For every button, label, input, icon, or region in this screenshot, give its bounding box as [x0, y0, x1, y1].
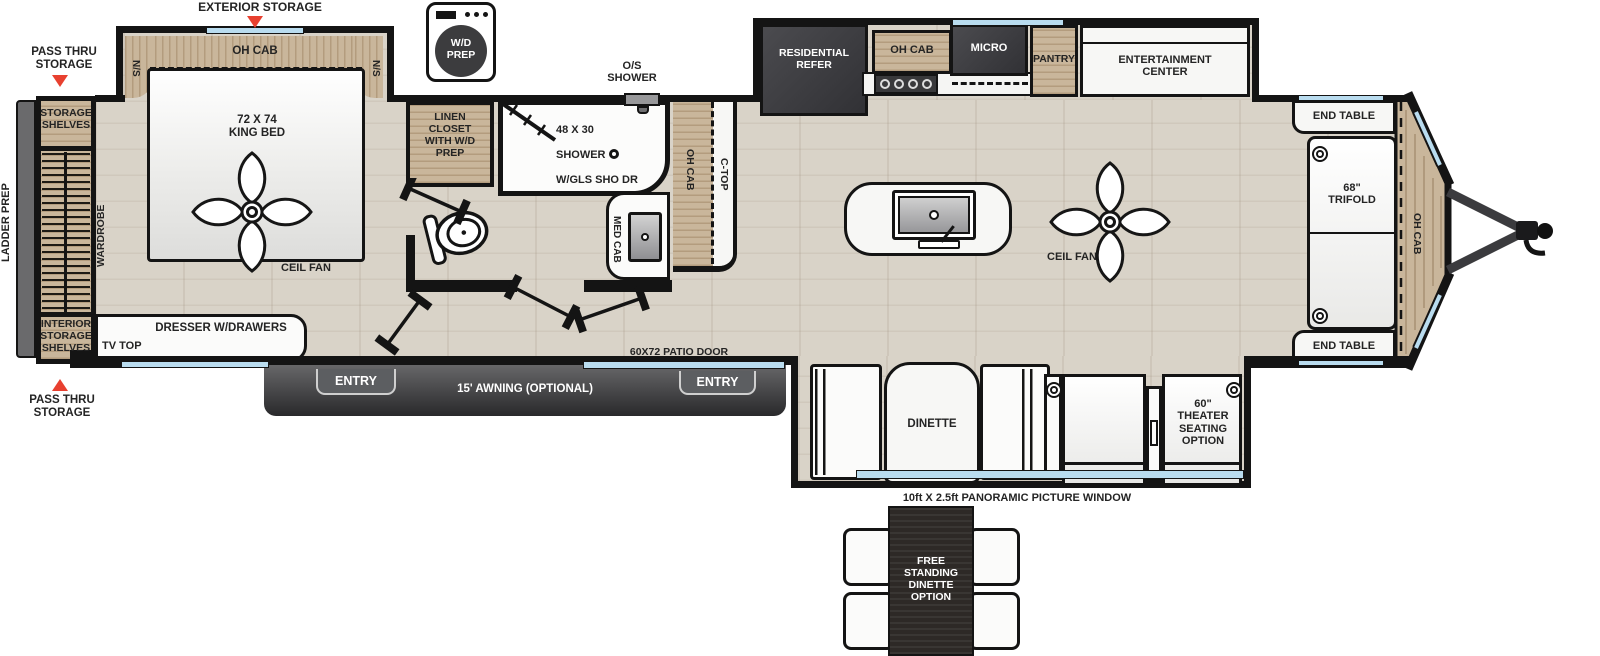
- patio-door-window: [583, 361, 785, 369]
- pantry-label: PANTRY: [1026, 54, 1082, 66]
- island-sink-drain: [929, 210, 939, 220]
- wardrobe-rod: [64, 152, 67, 312]
- entertainment-label: ENTERTAINMENT CENTER: [1086, 54, 1244, 79]
- entry-front-label: ENTRY: [679, 375, 756, 389]
- wardrobe-label: WARDROBE: [96, 190, 112, 282]
- kitchen-slide-window: [952, 19, 1064, 26]
- os-shower-fixture: [624, 93, 660, 106]
- burner-icon: [880, 79, 890, 89]
- theater-seat-right-footline: [1164, 462, 1240, 465]
- washer-knob: [483, 12, 488, 17]
- theater-console-tray: [1150, 420, 1158, 446]
- end-table-rear-label: END TABLE: [1294, 340, 1394, 352]
- living-ceiling-fan-icon: [1044, 156, 1176, 288]
- awning-label: 15' AWNING (OPTIONAL): [398, 383, 652, 396]
- burner-icon: [894, 79, 904, 89]
- cup-holder-icon: [1312, 146, 1328, 162]
- entertainment-divider: [1083, 42, 1247, 44]
- c-top-label: C-TOP: [714, 146, 729, 202]
- storage-divider: [38, 146, 94, 151]
- dinette-chair: [968, 592, 1020, 650]
- dinette-bench-right: [980, 364, 1050, 480]
- shower-size-text: 48 X 30: [556, 124, 594, 136]
- travel-trailer-floorplan: LADDER PREP EXTERIOR STORAGE PASS THRU S…: [0, 0, 1600, 656]
- exterior-storage-label: EXTERIOR STORAGE: [188, 1, 332, 15]
- washer-icon: W/D PREP: [426, 2, 496, 82]
- entry-rear-label: ENTRY: [316, 374, 396, 388]
- panoramic-window-label: 10ft X 2.5ft PANORAMIC PICTURE WINDOW: [857, 492, 1177, 504]
- dinette-chair: [968, 528, 1020, 586]
- ladder-prep-label: LADDER PREP: [0, 158, 16, 288]
- trifold-sofa-divider: [1310, 232, 1394, 234]
- nightstand-right-label: N/S: [366, 40, 381, 96]
- refrigerator-label: RESIDENTIAL REFER: [762, 48, 866, 72]
- theater-seating-label: 60" THEATER SEATING OPTION: [1164, 398, 1242, 448]
- dinette-label: DINETTE: [886, 418, 978, 431]
- dinette-bench-left-back: [815, 369, 830, 475]
- bedroom-slide-window: [206, 27, 304, 34]
- bedroom-slide-dashes: [150, 67, 362, 70]
- interior-storage-shelves-label: INTERIOR STORAGE SHELVES: [31, 319, 101, 355]
- washer-drawer: [436, 11, 456, 19]
- end-table-front-window: [1298, 95, 1384, 101]
- storage-divider: [38, 312, 94, 317]
- shower-door-text: W/GLS SHO DR: [556, 174, 638, 186]
- nightstand-left-label: N/S: [126, 40, 141, 96]
- shower-label: 48 X 30 SHOWER W/GLS SHO DR: [556, 112, 668, 187]
- end-table-rear-window: [1298, 360, 1384, 366]
- tv-top-label: TV TOP: [102, 340, 152, 352]
- theater-seat-left-footline: [1064, 462, 1144, 465]
- med-cab-label: MED CAB: [608, 210, 622, 268]
- shower-text: SHOWER: [556, 149, 606, 161]
- microwave-label: MICRO: [952, 42, 1026, 54]
- bedroom-ceil-fan-label: CEIL FAN: [270, 262, 342, 274]
- bedroom-ceiling-fan-icon: [186, 146, 318, 278]
- burner-icon: [908, 79, 918, 89]
- pass-thru-storage-bottom-label: PASS THRU STORAGE: [14, 394, 110, 422]
- storage-shelves-label: STORAGE SHELVES: [34, 108, 98, 132]
- front-oh-cab-label: OH CAB: [1406, 202, 1422, 266]
- exterior-storage-arrow-icon: [247, 16, 263, 28]
- island-faucet-base: [918, 240, 960, 249]
- burner-icon: [922, 79, 932, 89]
- bedroom-window: [121, 361, 269, 368]
- wall-top-mid: [388, 95, 760, 102]
- cup-holder-icon: [1226, 382, 1242, 398]
- wall-top-rear: [95, 95, 125, 102]
- wd-prep-label: W/D PREP: [435, 38, 487, 62]
- pass-thru-storage-top-label: PASS THRU STORAGE: [20, 46, 108, 74]
- living-ceil-fan-label: CEIL FAN: [1038, 251, 1106, 263]
- interior-doors: [368, 178, 678, 358]
- panoramic-window: [856, 470, 1244, 479]
- washer-knob: [465, 12, 470, 17]
- free-standing-dinette-label: FREE STANDING DINETTE OPTION: [890, 556, 972, 603]
- kitchen-oh-cab-label: OH CAB: [874, 44, 950, 56]
- cup-holder-icon: [1046, 382, 1062, 398]
- end-table-front-label: END TABLE: [1294, 110, 1394, 122]
- cup-holder-icon: [1312, 308, 1328, 324]
- os-shower-label: O/S SHOWER: [596, 60, 668, 86]
- pass-thru-storage-top-arrow-icon: [52, 75, 68, 87]
- trifold-sofa-label: 68" TRIFOLD: [1310, 182, 1394, 207]
- shower-drain-icon: [609, 149, 619, 159]
- dinette-bench-right-back: [1022, 369, 1037, 475]
- counter-edge-dashes: [952, 82, 1028, 85]
- king-bed-label: 72 X 74 KING BED: [198, 114, 316, 140]
- dresser-label: DRESSER W/DRAWERS: [140, 322, 302, 335]
- bedroom-oh-cab-label: OH CAB: [210, 45, 300, 58]
- patio-door-label: 60X72 PATIO DOOR: [620, 347, 738, 359]
- hitch-icon: [1452, 194, 1520, 268]
- counter-oh-cab-label: OH CAB: [680, 138, 695, 202]
- washer-knob: [474, 12, 479, 17]
- linen-closet-label: LINEN CLOSET WITH W/D PREP: [408, 112, 492, 159]
- pass-thru-storage-bottom-arrow-icon: [52, 379, 68, 391]
